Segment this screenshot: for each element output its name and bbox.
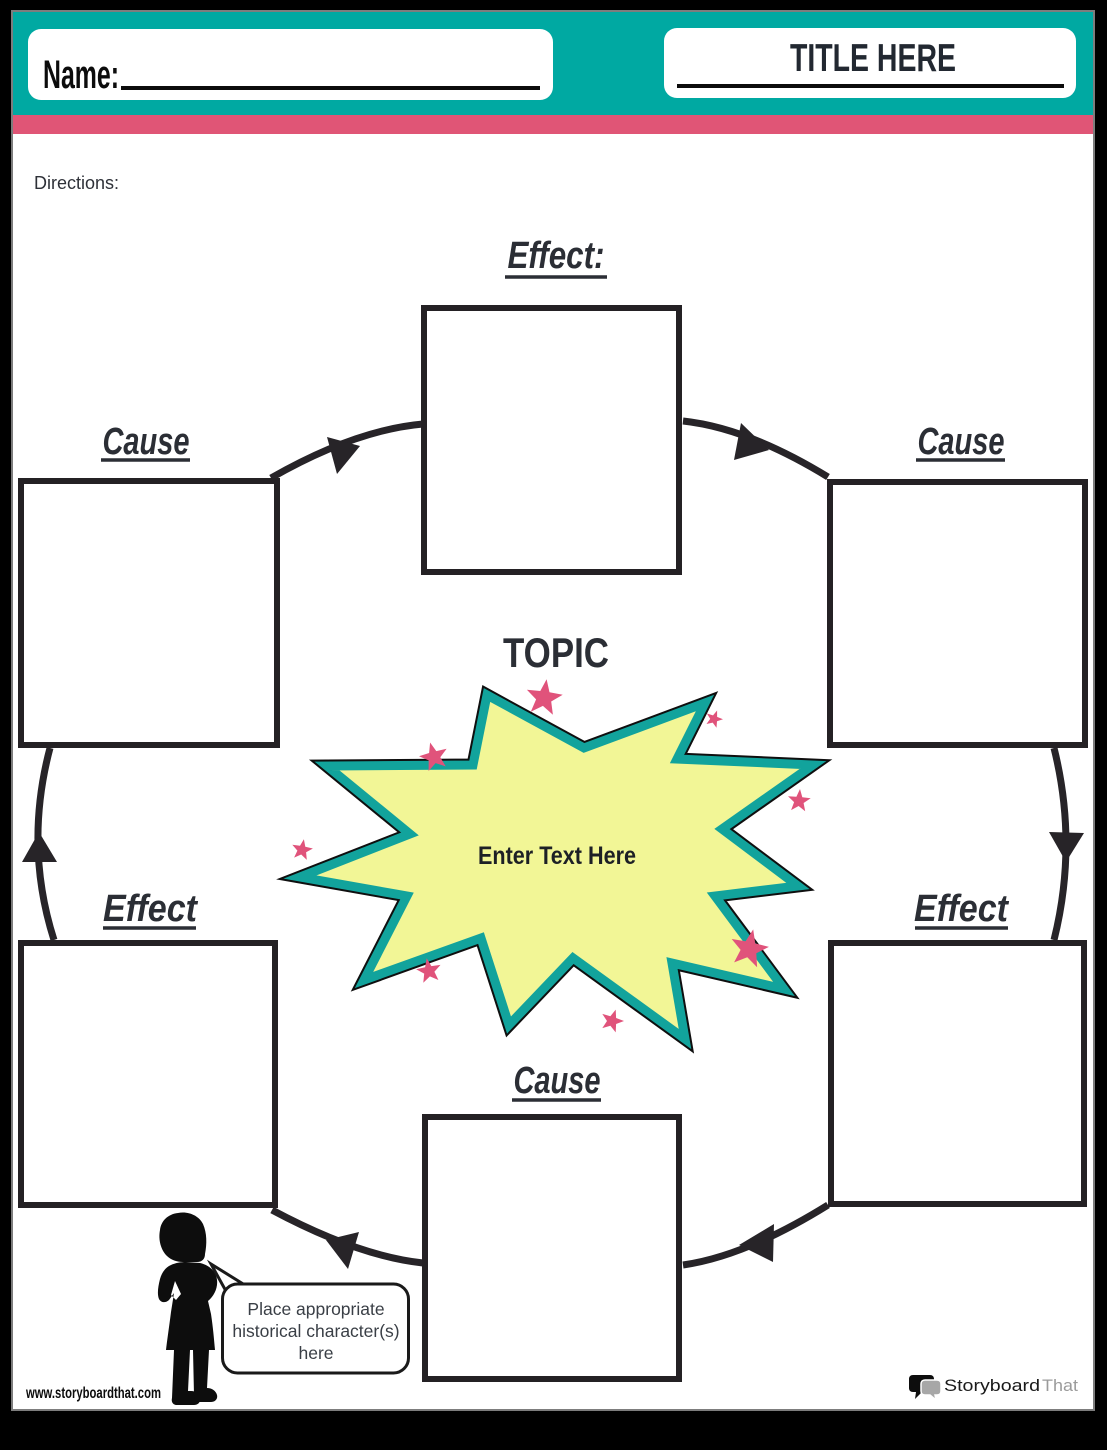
svg-text:Effect:: Effect: — [508, 235, 605, 277]
svg-text:Directions:: Directions: — [34, 173, 119, 193]
svg-text:That: That — [1042, 1376, 1078, 1395]
svg-text:Cause: Cause — [514, 1060, 601, 1102]
svg-text:www.storyboardthat.com: www.storyboardthat.com — [25, 1385, 161, 1402]
svg-text:Name:: Name: — [43, 53, 119, 97]
svg-text:here: here — [298, 1343, 333, 1363]
svg-text:Enter Text Here: Enter Text Here — [478, 842, 636, 870]
svg-text:Place appropriate: Place appropriate — [247, 1299, 384, 1319]
svg-text:Effect: Effect — [103, 888, 198, 930]
svg-text:Effect: Effect — [914, 888, 1009, 930]
svg-text:Storyboard: Storyboard — [944, 1376, 1040, 1395]
svg-text:Cause: Cause — [103, 421, 190, 463]
svg-text:TITLE HERE: TITLE HERE — [790, 37, 956, 80]
svg-text:Cause: Cause — [918, 421, 1005, 463]
svg-text:TOPIC: TOPIC — [503, 629, 609, 676]
svg-text:historical character(s): historical character(s) — [232, 1321, 399, 1341]
